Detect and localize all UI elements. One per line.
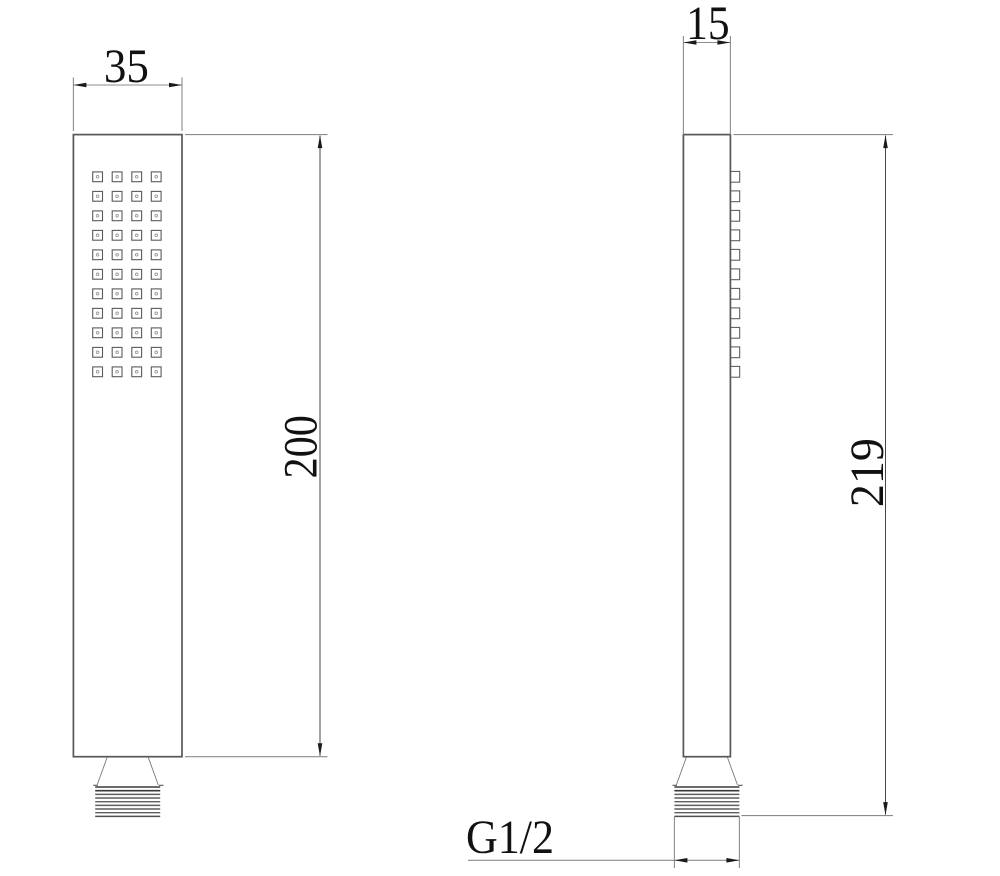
svg-text:200: 200 xyxy=(275,415,328,479)
svg-text:219: 219 xyxy=(841,438,894,507)
svg-text:35: 35 xyxy=(104,40,149,93)
svg-text:15: 15 xyxy=(686,0,730,50)
svg-text:G1/2: G1/2 xyxy=(466,811,554,864)
